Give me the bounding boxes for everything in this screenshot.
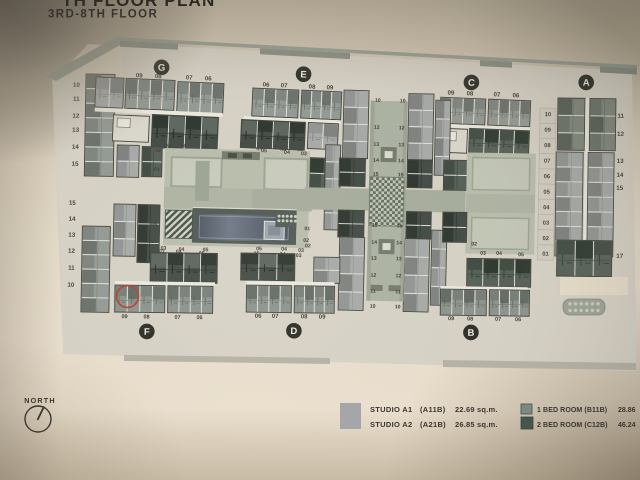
svg-text:22.69 sq.m.: 22.69 sq.m.	[455, 405, 498, 414]
svg-text:STUDIO A2: STUDIO A2	[370, 420, 412, 429]
svg-text:2 BED ROOM (C12B): 2 BED ROOM (C12B)	[537, 422, 608, 429]
svg-text:1 BED ROOM (B11B): 1 BED ROOM (B11B)	[537, 407, 607, 414]
svg-text:NORTH: NORTH	[24, 396, 56, 405]
svg-text:3RD-8TH FLOOR: 3RD-8TH FLOOR	[48, 9, 158, 21]
svg-text:(A11B): (A11B)	[420, 405, 446, 414]
svg-text:26.85 sq.m.: 26.85 sq.m.	[455, 420, 498, 429]
svg-text:STUDIO A1: STUDIO A1	[370, 405, 412, 414]
svg-text:(A21B): (A21B)	[420, 420, 446, 429]
svg-text:46.24: 46.24	[618, 422, 636, 429]
svg-text:28.86: 28.86	[618, 407, 636, 414]
